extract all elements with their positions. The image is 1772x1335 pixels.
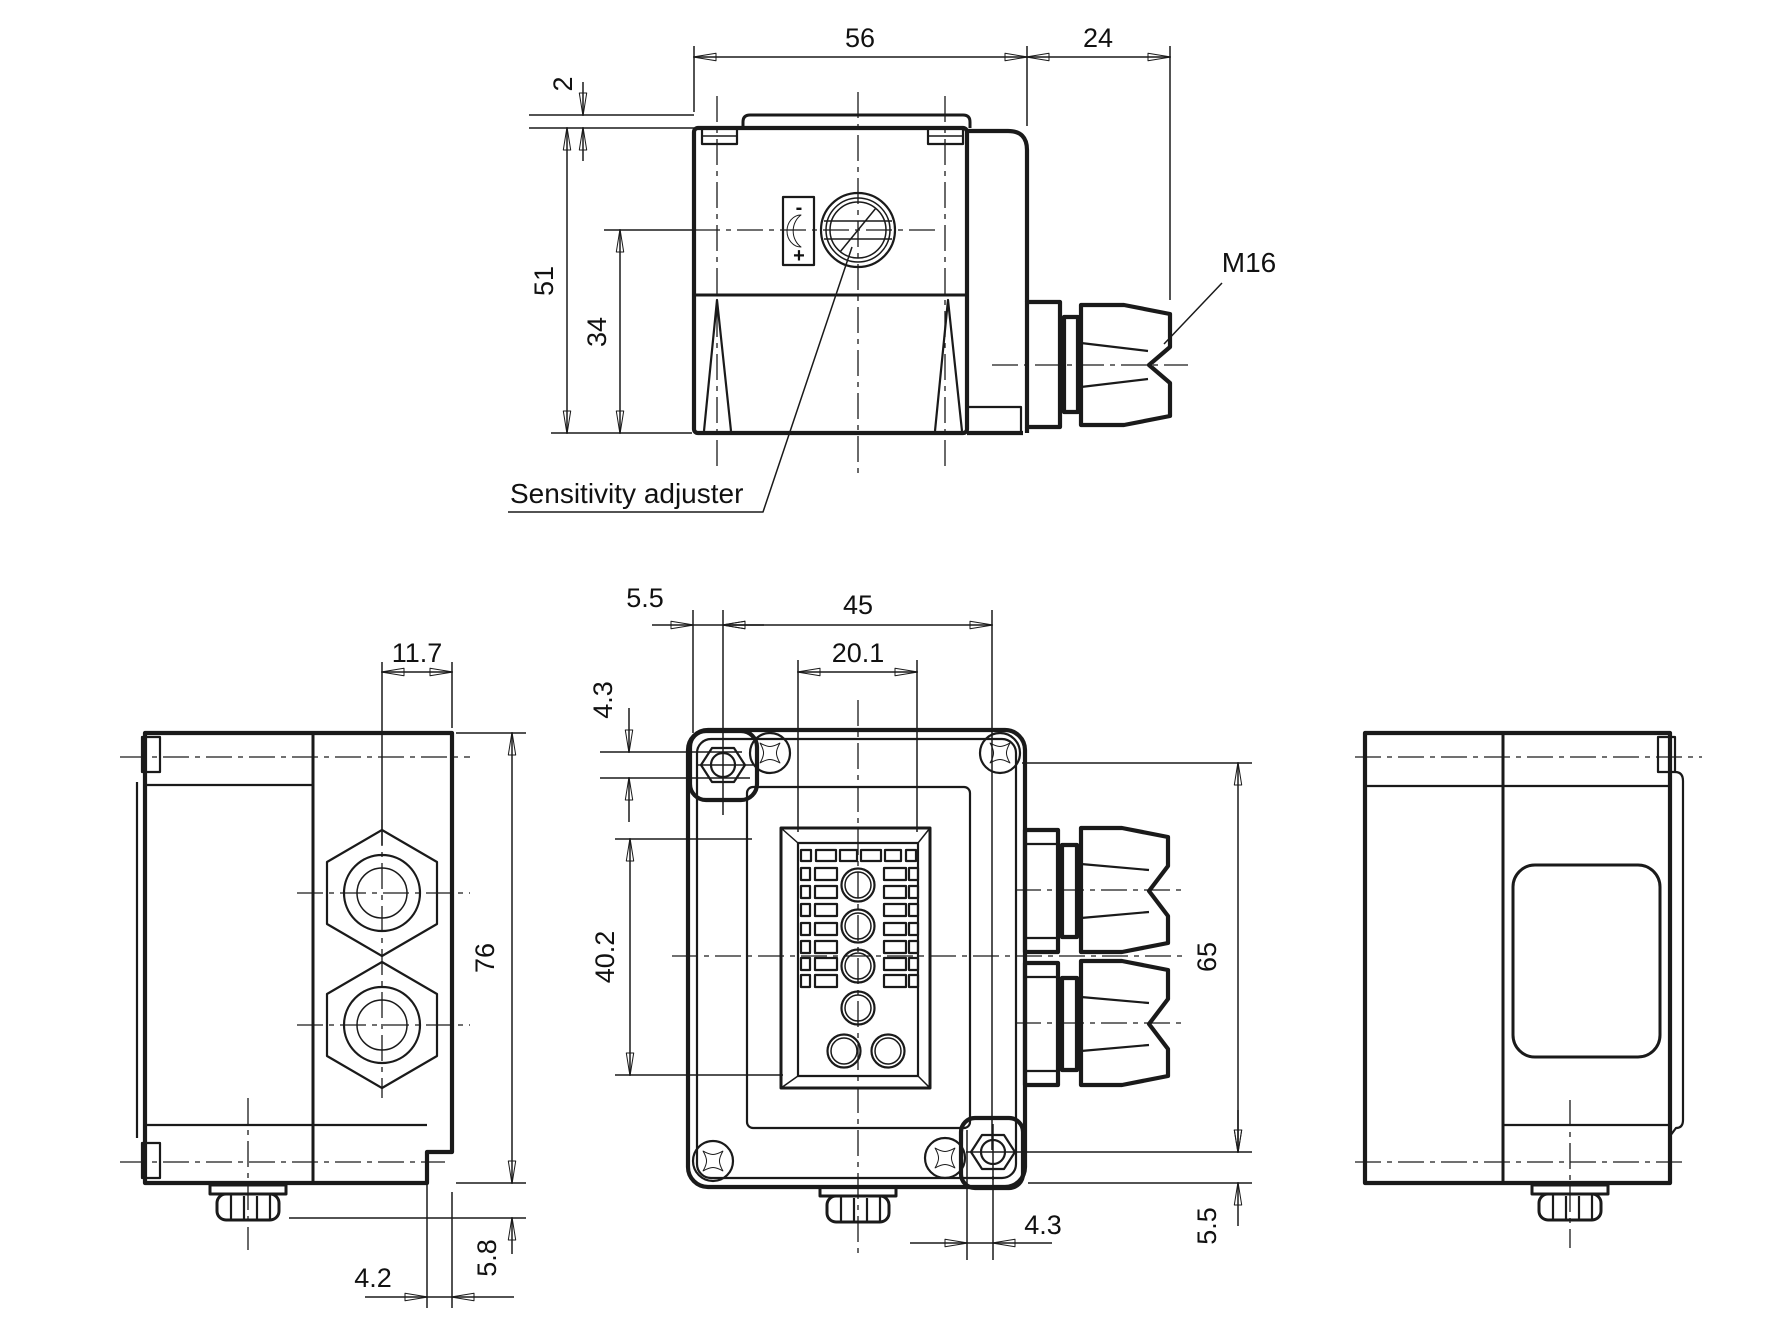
dim-mount-spacing: 45 <box>843 590 873 620</box>
left-centerlines <box>120 757 470 1250</box>
lid-outline <box>694 128 967 433</box>
dim-lid-lip: 2 <box>548 76 578 91</box>
adjuster-callout-label: Sensitivity adjuster <box>510 478 743 509</box>
screw-boss-cones <box>704 300 962 431</box>
dim-adjuster-offset: 34 <box>582 317 612 347</box>
right-centerlines <box>1355 757 1702 1248</box>
dim-foot-step: 4.2 <box>354 1263 392 1293</box>
dim-mount-vertical-spacing: 65 <box>1192 942 1222 972</box>
dim-gland-center-edge: 11.7 <box>392 638 443 668</box>
crescent-icon <box>787 215 801 247</box>
right-side-view <box>1355 733 1702 1248</box>
base-outline <box>967 131 1027 433</box>
right-body-outline <box>1365 733 1670 1183</box>
right-lip-notch <box>1658 737 1675 772</box>
cover-screw-icon <box>693 1141 733 1181</box>
left-body-outline <box>145 733 452 1183</box>
panel-terminal-marks <box>801 850 918 987</box>
label-panel <box>781 828 930 1088</box>
dim-mount-bottom-offset: 4.3 <box>1024 1210 1062 1240</box>
thread-size-label: M16 <box>1222 247 1276 278</box>
base-step-line <box>967 407 1021 431</box>
m16-leader <box>1164 283 1222 344</box>
front-lid-inner-line <box>697 739 1016 1178</box>
top-view: - + 56 24 2 51 34 M16 Sensitivity adjust… <box>508 23 1276 512</box>
dim-panel-width: 20.1 <box>832 638 885 668</box>
left-detail-lines <box>137 782 427 1138</box>
dim-knob-protrusion: 5.8 <box>472 1239 502 1277</box>
dim-mount-top-offset: 4.3 <box>588 681 618 719</box>
adjuster-plus-label: + <box>793 245 805 267</box>
dim-panel-height: 40.2 <box>590 931 620 984</box>
left-side-view: 11.7 76 4.2 5.8 <box>120 638 526 1308</box>
dim-body-width: 56 <box>845 23 875 53</box>
dim-body-depth: 51 <box>529 266 559 296</box>
mount-hole-top-left <box>696 748 753 782</box>
front-view: 5.5 45 20.1 4.3 40.2 65 5.5 4.3 <box>588 583 1252 1260</box>
adjuster-plate: - + <box>783 197 814 267</box>
drawing-canvas: - + 56 24 2 51 34 M16 Sensitivity adjust… <box>0 0 1772 1335</box>
adjuster-leader <box>508 247 852 512</box>
dim-gland-length: 24 <box>1083 23 1113 53</box>
adjuster-minus-label: - <box>796 197 803 219</box>
top-centerlines <box>694 92 1188 476</box>
technical-drawing-page: - + 56 24 2 51 34 M16 Sensitivity adjust… <box>0 0 1772 1335</box>
dim-housing-height: 76 <box>470 943 500 973</box>
lid-window-recess <box>1513 865 1660 1057</box>
dim-mount-edge-offset: 5.5 <box>626 583 664 613</box>
right-detail-lines <box>1365 786 1670 1125</box>
dim-mount-bottom-edge: 5.5 <box>1192 1207 1222 1245</box>
